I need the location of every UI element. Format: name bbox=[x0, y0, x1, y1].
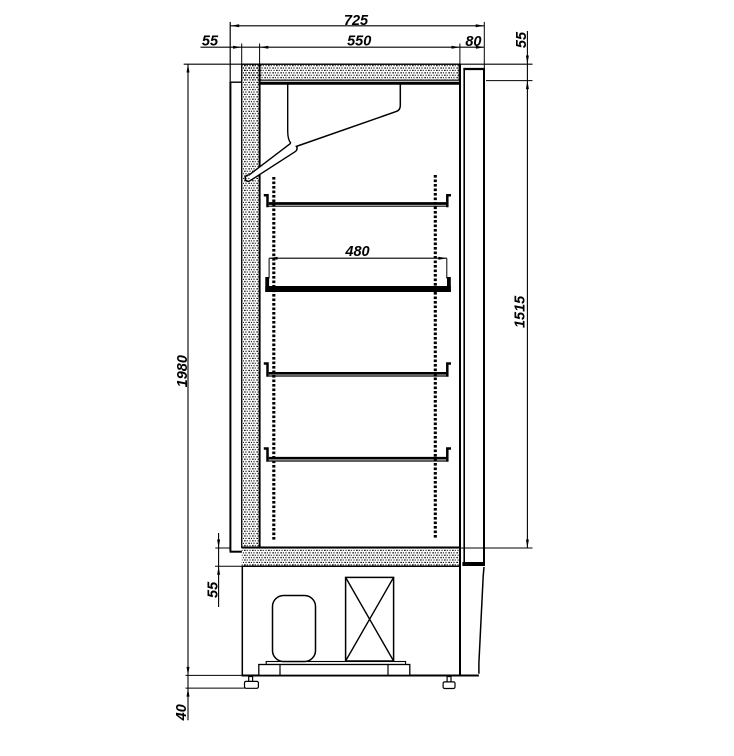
svg-text:40: 40 bbox=[174, 704, 190, 721]
svg-text:55: 55 bbox=[514, 31, 530, 48]
svg-text:725: 725 bbox=[344, 13, 369, 29]
svg-text:1980: 1980 bbox=[175, 355, 191, 387]
svg-text:1515: 1515 bbox=[512, 295, 528, 328]
svg-text:550: 550 bbox=[347, 34, 371, 50]
svg-text:55: 55 bbox=[202, 33, 219, 49]
svg-text:55: 55 bbox=[205, 581, 221, 598]
svg-text:480: 480 bbox=[344, 244, 369, 260]
svg-text:80: 80 bbox=[465, 34, 481, 50]
